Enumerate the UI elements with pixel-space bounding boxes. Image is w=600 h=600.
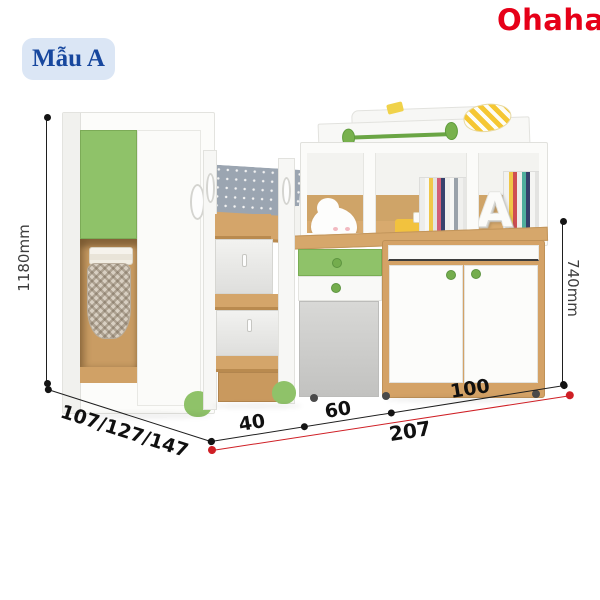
- dim-endpoint-dot: [560, 381, 568, 389]
- storage-basket: [87, 263, 131, 339]
- floor-shadow: [212, 403, 302, 409]
- cabinet-top-drawer: [388, 245, 539, 261]
- stair-panel-cutout: [206, 173, 215, 203]
- model-badge-label: Mẫu A: [32, 45, 105, 73]
- stair-step-top: [215, 214, 271, 239]
- green-drawer: [298, 249, 382, 276]
- brand-logo: Ohaha ®: [497, 4, 600, 38]
- model-badge: Mẫu A: [22, 38, 115, 80]
- white-drawer: [298, 276, 382, 301]
- dim-height-line: [46, 117, 47, 384]
- dim-total-width-label: 207: [387, 416, 432, 446]
- cabinet-knob-left: [446, 270, 456, 280]
- cabinet: [382, 240, 545, 398]
- stair-drawer-lower: [216, 310, 282, 356]
- white-drawer-knob: [331, 283, 341, 293]
- dim-endpoint-dot: [44, 114, 51, 121]
- brand-logo-text: Ohaha: [497, 4, 600, 36]
- cabinet-door-left: [389, 265, 463, 383]
- stair-step-middle: [215, 294, 281, 310]
- dim-endpoint-dot: [207, 437, 215, 445]
- bookshelf-divider-left: [363, 153, 376, 233]
- dim-endpoint-dot: [44, 385, 53, 394]
- bookshelf-interior: A: [307, 153, 539, 233]
- product-dimension-image: Mẫu A Ohaha ®: [0, 0, 600, 600]
- letter-a-decor: A: [477, 187, 513, 233]
- bookshelf-divider-right: [466, 153, 479, 233]
- stair-drawer-upper: [215, 239, 273, 294]
- wardrobe-side-panel: [63, 113, 81, 413]
- stair-foot: [272, 381, 296, 404]
- caster-wheel: [532, 390, 540, 398]
- cabinet-knob-right: [471, 269, 481, 279]
- wardrobe-white-door: [137, 130, 201, 406]
- drawer-handle-slot: [242, 254, 247, 267]
- dim-endpoint-dot: [300, 422, 308, 430]
- wardrobe: [62, 112, 215, 414]
- cabinet-door-right: [464, 265, 538, 383]
- book-row-left: [419, 177, 469, 233]
- dim-desk-height-label: 740mm: [562, 248, 582, 328]
- underdesk-panel: [299, 301, 379, 397]
- stair-side-panel-right: [278, 158, 295, 404]
- stair-panel-cutout: [282, 177, 291, 205]
- dim-endpoint-dot-red: [565, 391, 574, 400]
- green-drawer-knob: [332, 258, 342, 268]
- caster-wheel: [310, 394, 318, 402]
- dim-endpoint-dot: [387, 409, 395, 417]
- dim-segment-label-60: 60: [317, 396, 360, 424]
- dim-height-label: 1180mm: [15, 218, 35, 298]
- cubby-base: [80, 367, 137, 383]
- drawer-handle-slot: [247, 319, 252, 332]
- dim-endpoint-dot-red: [207, 446, 216, 455]
- wardrobe-green-door: [80, 130, 137, 239]
- dim-endpoint-dot: [560, 218, 567, 225]
